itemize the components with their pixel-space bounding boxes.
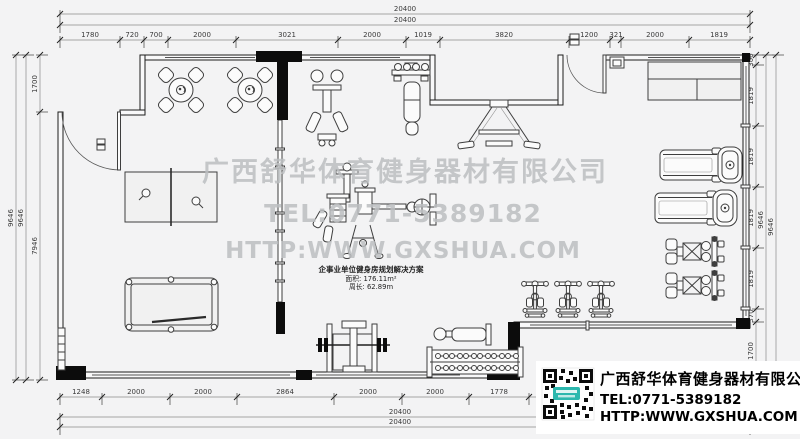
dim-bottom-0: 1248 — [72, 388, 90, 396]
window-mullion — [741, 246, 750, 249]
radiator — [58, 328, 65, 370]
dumbbell-rack — [427, 347, 523, 377]
pec-deck-machine — [305, 70, 349, 146]
dim-top-1: 720 — [125, 31, 138, 39]
dim-left-total-2: 9646 — [17, 209, 25, 227]
dim-bottom-1: 2000 — [127, 388, 145, 396]
qr-code — [542, 368, 594, 420]
exercise-bike — [666, 236, 724, 267]
dim-bottom-4: 2000 — [359, 388, 377, 396]
spin-bike — [588, 281, 615, 317]
dim-bottom-5: 2000 — [426, 388, 444, 396]
flat-bench — [434, 324, 491, 345]
qr-center-logo — [553, 387, 580, 400]
lat-pulldown-machine — [392, 63, 430, 135]
plan-label: 企事业单位健身房规划解决方案 面积: 176.11m² 周长: 62.89m — [318, 264, 424, 291]
window-mullion — [741, 307, 750, 310]
dim-top-8: 1200 — [580, 31, 598, 39]
dim-top-2: 700 — [149, 31, 162, 39]
dim-left-1: 7946 — [31, 237, 39, 255]
exercise-bike — [666, 270, 724, 301]
bench-press — [316, 321, 390, 372]
dim-labels-top: 20400 20400 1780 720 700 2000 3021 2000 … — [81, 5, 728, 39]
dim-top-0: 1780 — [81, 31, 99, 39]
column-marker-icon — [97, 139, 105, 150]
dim-bottom-6: 1778 — [490, 388, 508, 396]
column-marker-icon — [570, 34, 579, 45]
dim-top-11: 1819 — [710, 31, 728, 39]
plan-perimeter: 周长: 62.89m — [349, 282, 394, 291]
window-mullion — [741, 185, 750, 188]
dim-labels-left: 9646 9646 1700 7946 — [7, 75, 39, 255]
dim-labels-bottom: 1248 2000 2000 2864 2000 2000 1778 20400… — [72, 388, 508, 426]
dim-right-6: 1700 — [747, 342, 755, 360]
plan-area: 面积: 176.11m² — [345, 274, 396, 283]
dim-bottom-3: 2864 — [276, 388, 294, 396]
spin-bike — [522, 281, 549, 317]
dim-top-total-1: 20400 — [394, 5, 416, 13]
plan-title: 企事业单位健身房规划解决方案 — [318, 264, 424, 274]
spin-bike — [555, 281, 582, 317]
dim-top-5: 2000 — [363, 31, 381, 39]
window-mullion — [741, 124, 750, 127]
dim-top-9: 321 — [609, 31, 622, 39]
a-frame-rack — [458, 100, 541, 149]
dim-top-4: 3021 — [278, 31, 296, 39]
dim-labels-right: 300 1819 1819 1819 1819 370 1700 9646 96… — [747, 53, 775, 360]
watermark-web: HTTP:WWW.GXSHUA.COM — [225, 238, 581, 264]
dim-top-3: 2000 — [193, 31, 211, 39]
dim-right-total-2: 9646 — [767, 218, 775, 236]
dim-left-total-1: 9646 — [7, 209, 15, 227]
dim-right-total-1: 9646 — [757, 211, 765, 229]
dim-top-10: 2000 — [646, 31, 664, 39]
dim-top-total-2: 20400 — [394, 16, 416, 24]
logo-card-web: HTTP:WWW.GXSHUA.COM — [600, 409, 798, 425]
dim-top-6: 1019 — [414, 31, 432, 39]
dim-top-7: 3820 — [495, 31, 513, 39]
floor-plan-svg: 20400 20400 1780 720 700 2000 3021 2000 … — [0, 0, 800, 439]
counter-cabinet — [648, 62, 741, 100]
door-top-right — [567, 55, 624, 93]
watermark-tel: TEL:0771-5389182 — [264, 199, 542, 228]
round-table-with-chairs — [157, 66, 205, 114]
watermark: 广西舒华体育健身器材有限公司 TEL:0771-5389182 HTTP:WWW… — [202, 156, 608, 264]
logo-card-tel: TEL:0771-5389182 — [600, 392, 741, 408]
window-mullion — [586, 321, 589, 330]
floor-plan-page: 20400 20400 1780 720 700 2000 3021 2000 … — [0, 0, 800, 439]
logo-card-company: 广西舒华体育健身器材有限公司 — [600, 370, 800, 388]
treadmill — [655, 190, 737, 226]
logo-card: 广西舒华体育健身器材有限公司 TEL:0771-5389182 HTTP:WWW… — [536, 361, 800, 434]
door-left — [62, 112, 121, 170]
treadmill — [660, 147, 742, 183]
billiard-table — [125, 277, 218, 333]
dim-bottom-total-1: 20400 — [389, 408, 411, 416]
round-table-with-chairs — [226, 66, 274, 114]
watermark-company: 广西舒华体育健身器材有限公司 — [202, 156, 608, 188]
dim-bottom-2: 2000 — [194, 388, 212, 396]
dim-bottom-total-2: 20400 — [389, 418, 411, 426]
dim-left-0: 1700 — [31, 75, 39, 93]
